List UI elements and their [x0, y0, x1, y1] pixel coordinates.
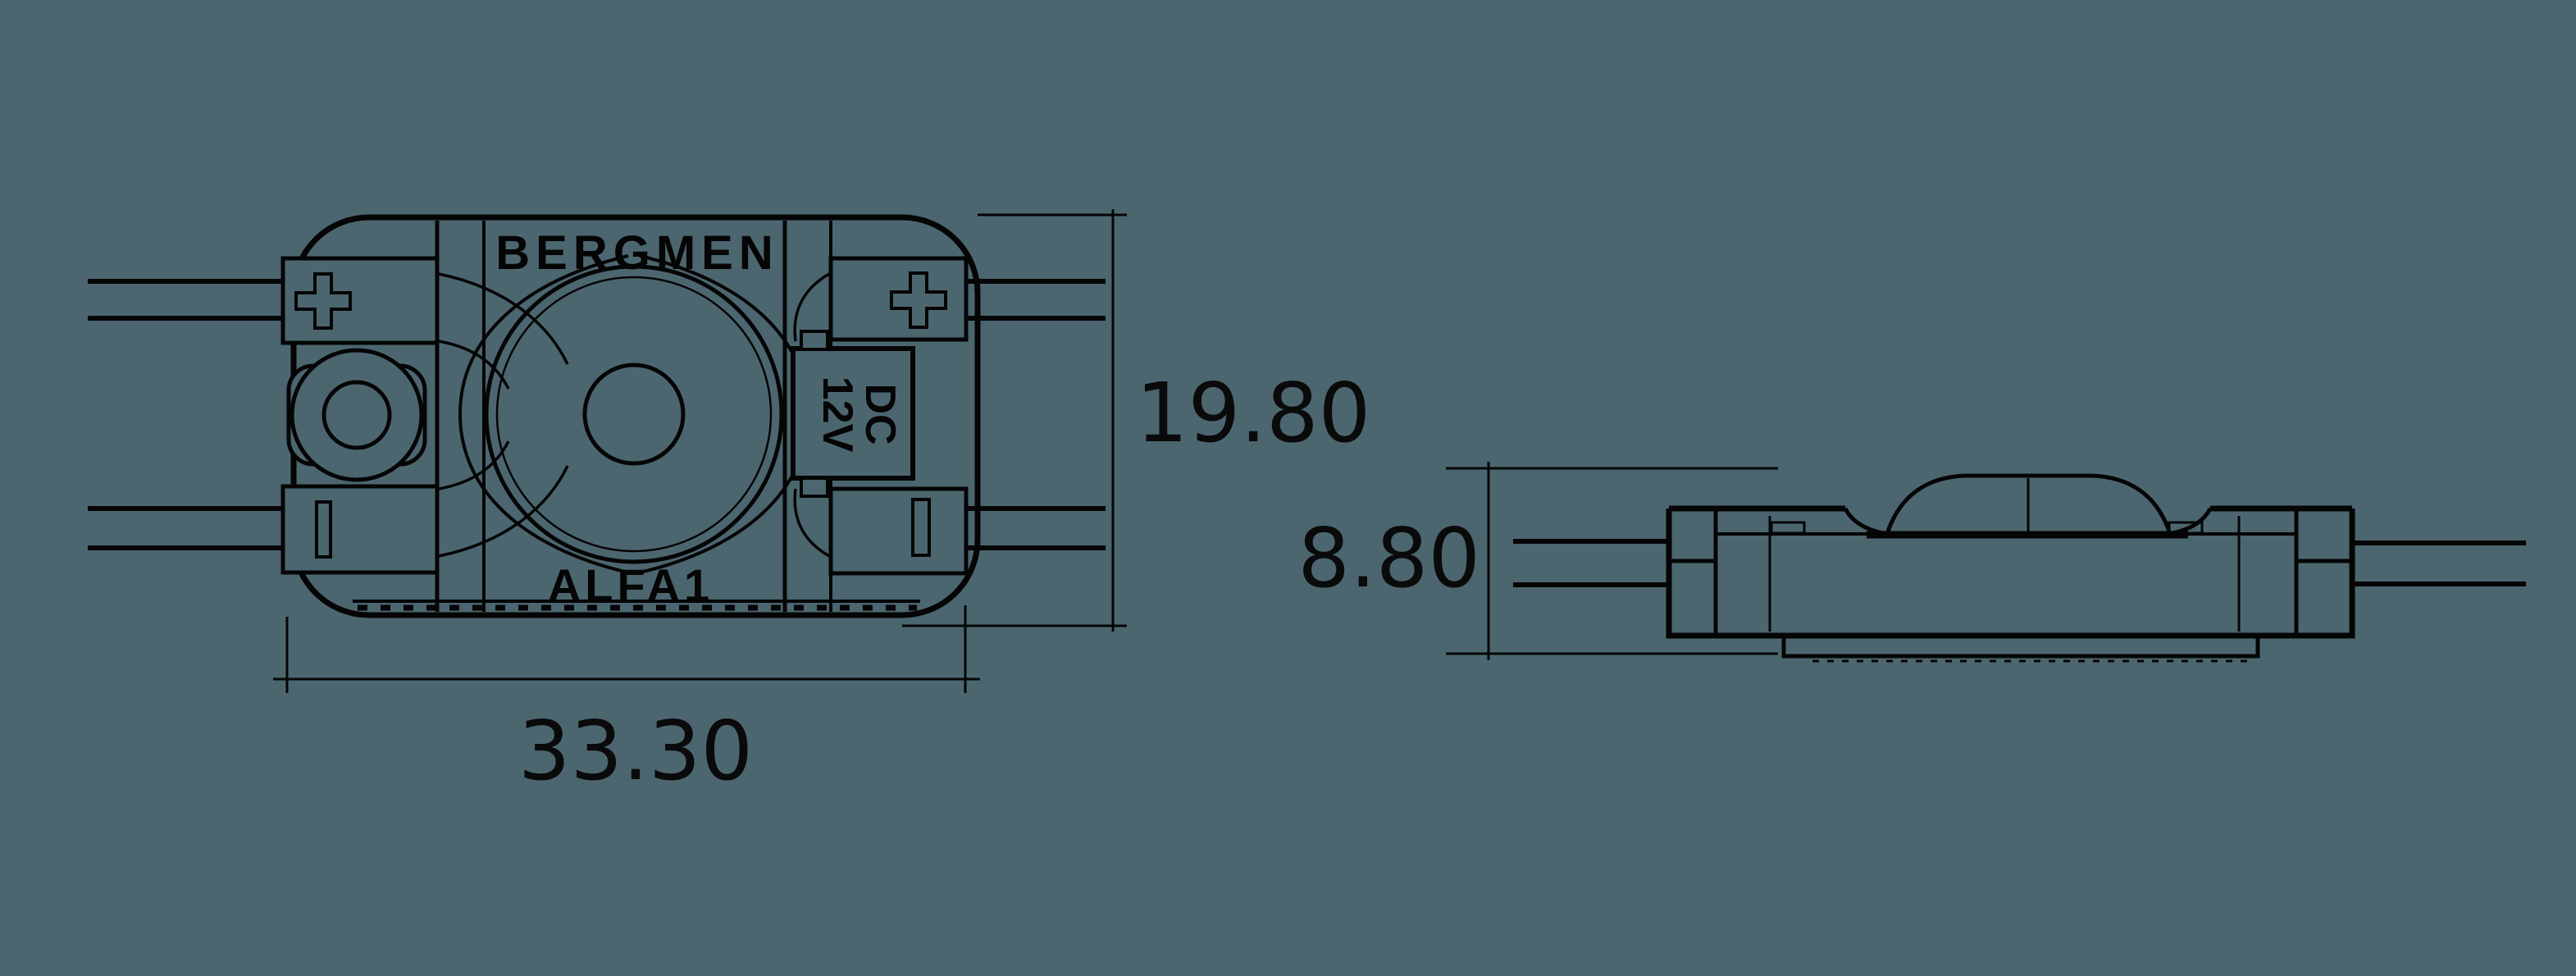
clip-notch-left [1771, 522, 1804, 533]
side-wires [1513, 541, 2526, 585]
dimension-width: 33.30 [273, 605, 980, 799]
mounting-boss-ring [292, 350, 422, 480]
wires-left [88, 281, 283, 548]
flare-bottom-left-b [439, 441, 508, 489]
model-text: ALFA1 [548, 559, 714, 611]
lens-outer-rim [486, 267, 782, 562]
led-chip-circle [585, 365, 683, 463]
side-step-right [2173, 509, 2210, 533]
side-view [1513, 476, 2526, 661]
brand-text: BERGMEN [495, 226, 778, 280]
driver-block-notch-bottom [801, 478, 828, 496]
supply-marking-dc: DC [856, 383, 904, 445]
height-dimension-label: 19.80 [1136, 365, 1370, 461]
top-view: DC 12V BERGMEN ALFA1 [88, 217, 1106, 615]
adhesive-pad [1784, 637, 2258, 656]
wires-right [966, 281, 1106, 548]
terminal-tab-bottom-right [831, 489, 966, 573]
depth-dimension-label: 8.80 [1297, 510, 1480, 606]
technical-drawing-canvas: DC 12V BERGMEN ALFA1 [0, 0, 2576, 976]
driver-block-notch-top [801, 331, 828, 349]
side-step-left [1845, 509, 1883, 533]
lens-inner-rim [497, 277, 771, 551]
flare-bottom-right [795, 489, 829, 556]
width-dimension-label: 33.30 [518, 703, 753, 799]
supply-marking: DC 12V [814, 376, 904, 453]
led-module-drawing: DC 12V BERGMEN ALFA1 [0, 0, 2576, 976]
terminal-tab-bottom-left [283, 486, 437, 572]
flare-top-left-b [439, 341, 508, 389]
supply-marking-12v: 12V [814, 376, 861, 453]
terminal-tab-top-left [283, 258, 437, 343]
